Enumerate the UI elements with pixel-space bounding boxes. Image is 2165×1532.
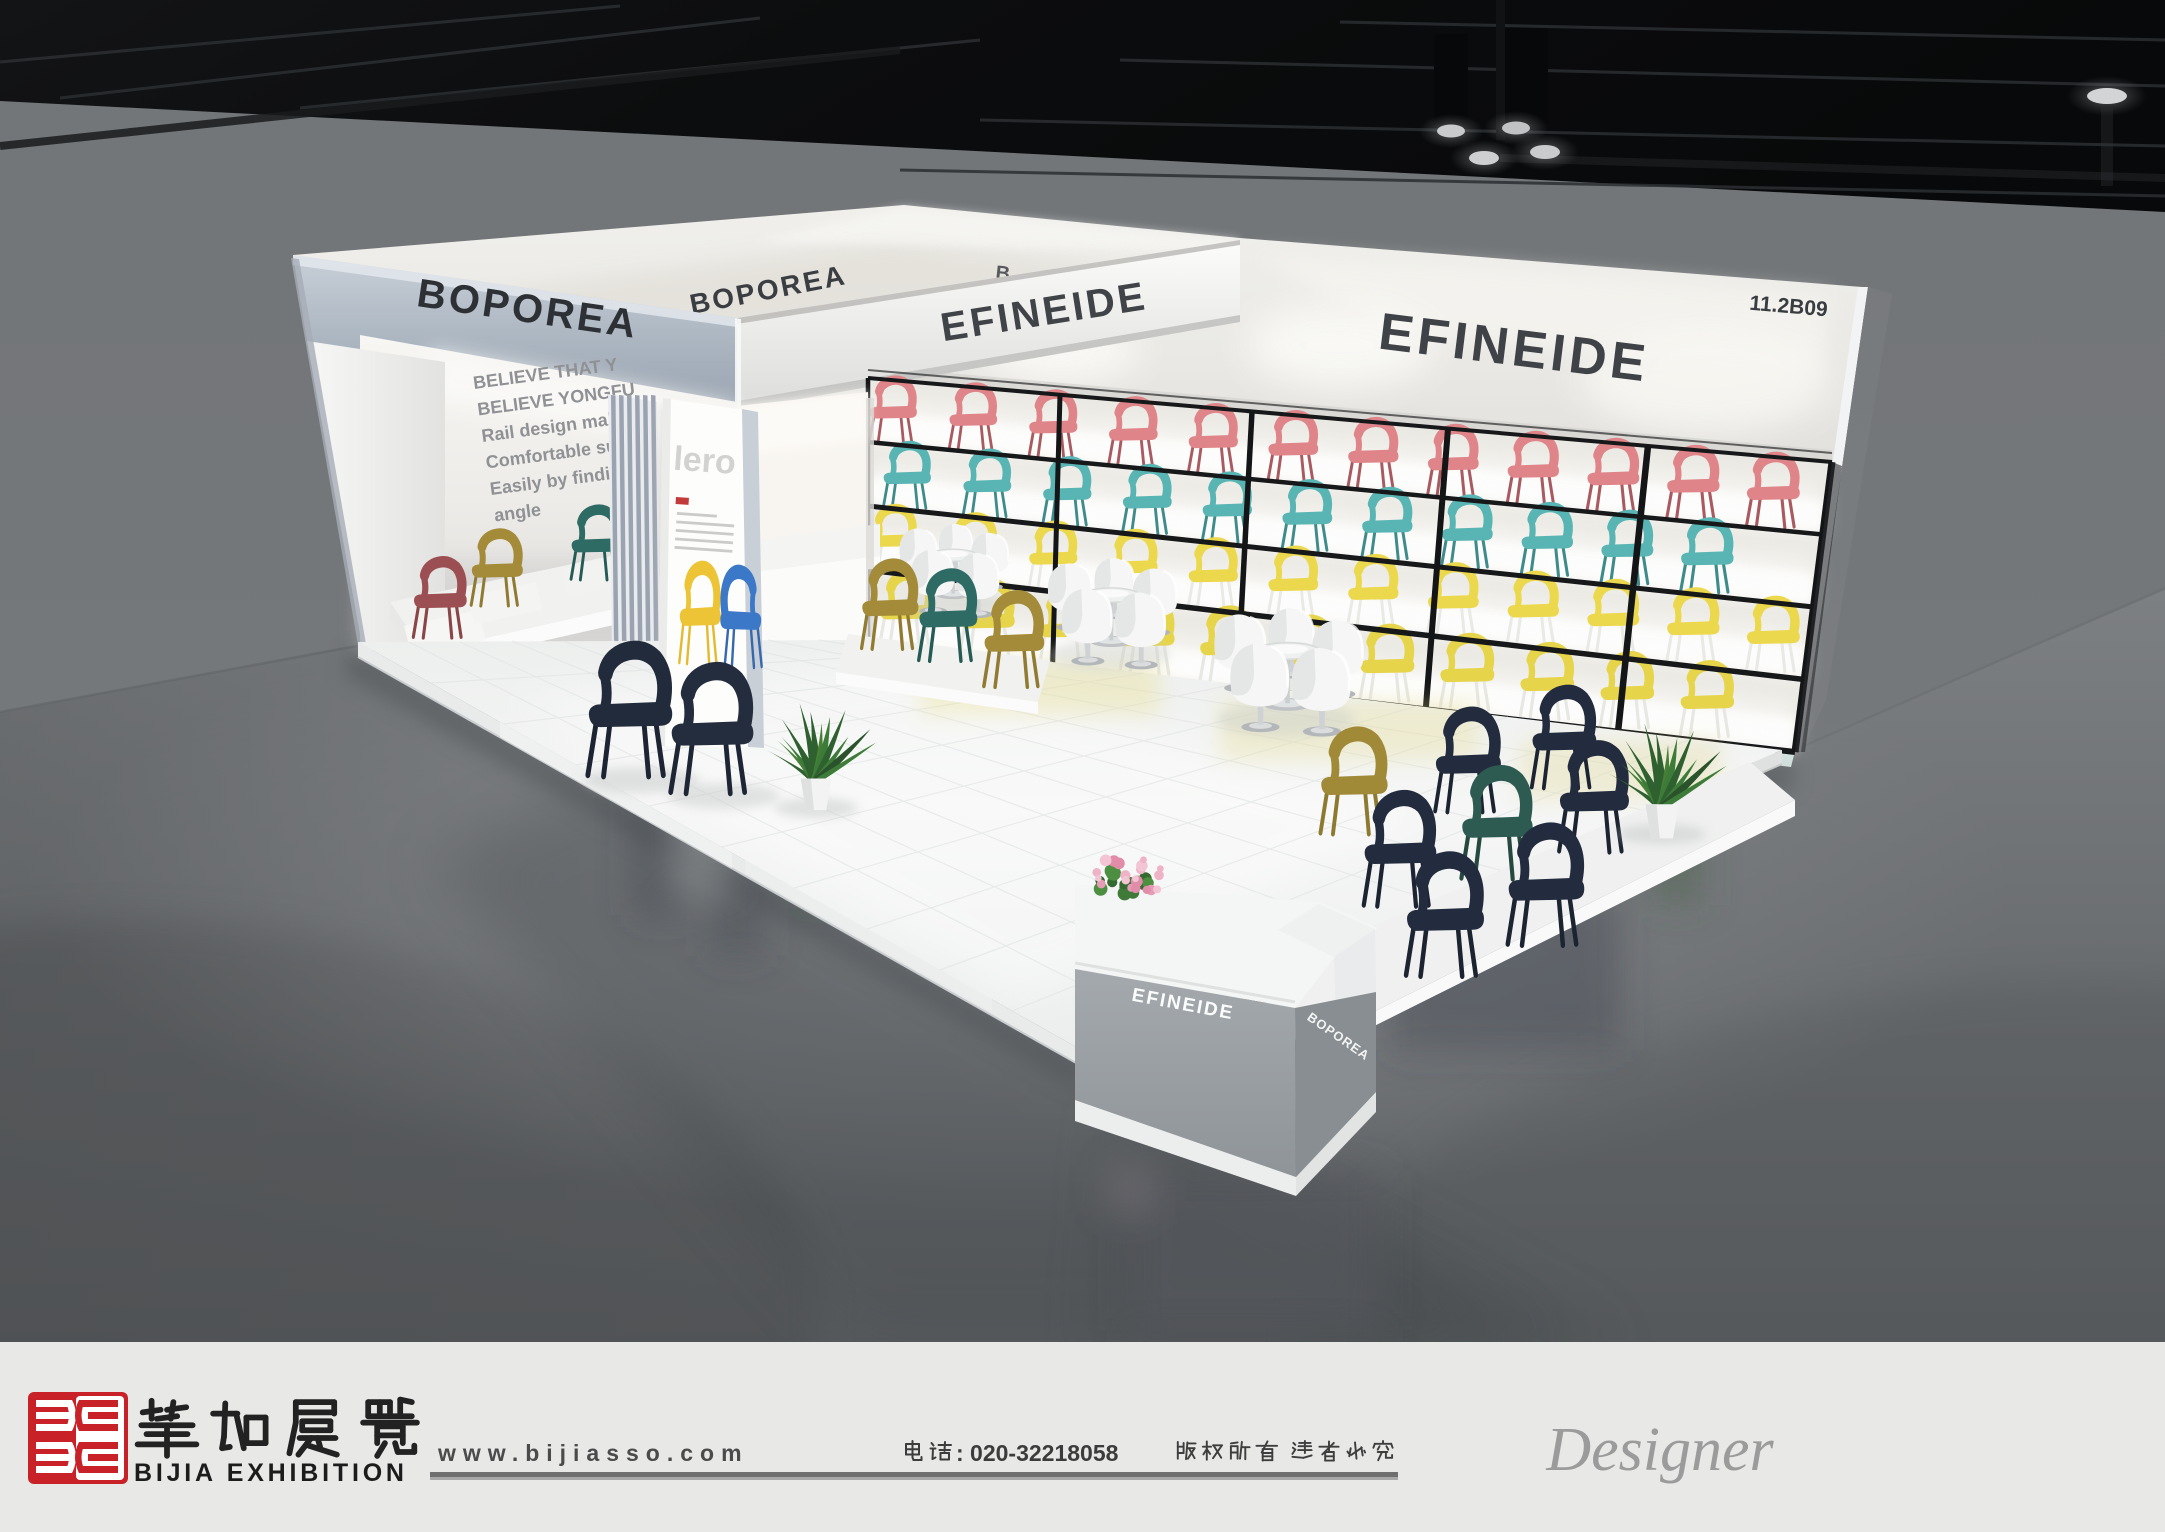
svg-text:: 020-32218058: : 020-32218058 (956, 1440, 1119, 1466)
svg-text:BIJIA EXHIBITION: BIJIA EXHIBITION (134, 1459, 408, 1487)
svg-text:lero: lero (672, 440, 737, 482)
svg-text:Designer: Designer (1545, 1416, 1774, 1484)
svg-text:www.bijiasso.com: www.bijiasso.com (437, 1440, 749, 1466)
